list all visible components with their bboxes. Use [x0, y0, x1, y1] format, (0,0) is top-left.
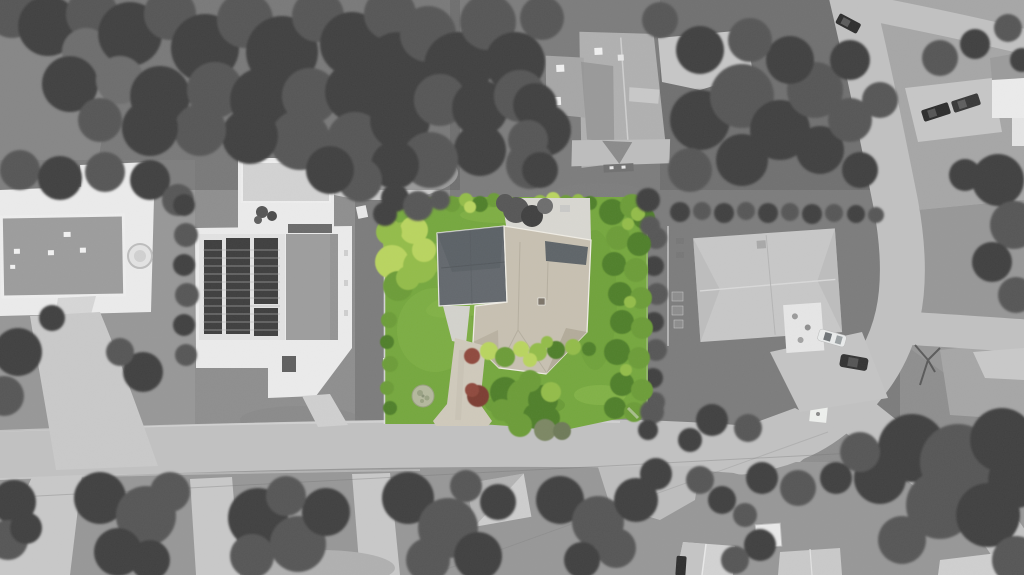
photo-grain-overlay [0, 0, 1024, 575]
aerial-photo-stage [0, 0, 1024, 575]
aerial-photo [0, 0, 1024, 575]
